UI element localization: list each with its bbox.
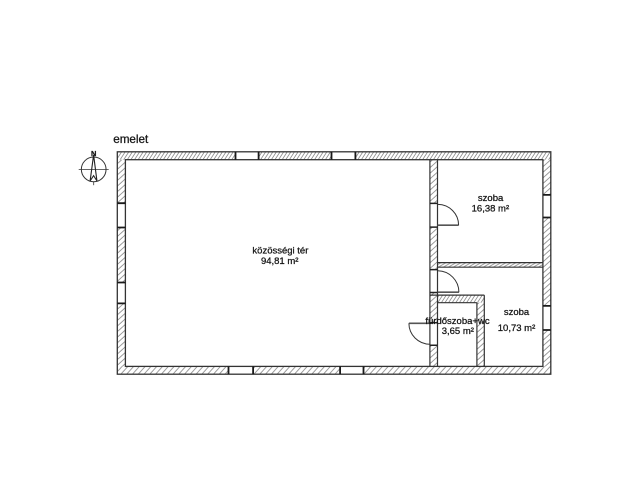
svg-text:16,38 m²: 16,38 m² (472, 204, 510, 215)
svg-text:szoba: szoba (504, 307, 530, 318)
svg-text:3,65 m²: 3,65 m² (442, 326, 474, 337)
svg-text:10,73 m²: 10,73 m² (498, 323, 536, 334)
svg-text:emelet: emelet (113, 133, 149, 146)
svg-text:N: N (91, 149, 96, 158)
svg-text:szoba: szoba (478, 193, 504, 204)
svg-text:94,81 m²: 94,81 m² (261, 256, 299, 267)
